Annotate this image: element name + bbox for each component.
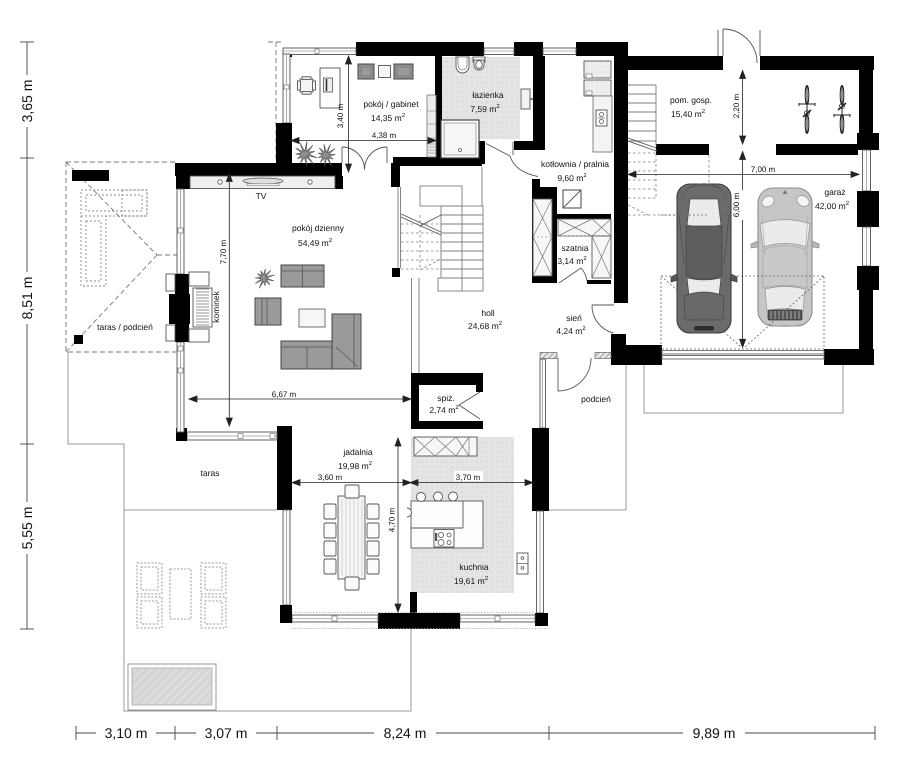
svg-text:garaż: garaż [824, 187, 845, 197]
svg-text:3,10 m: 3,10 m [105, 725, 148, 741]
svg-text:7,70 m: 7,70 m [219, 239, 228, 264]
svg-text:24,68 m2: 24,68 m2 [468, 320, 503, 331]
svg-text:kuchnia: kuchnia [459, 562, 489, 572]
svg-text:3,14 m2: 3,14 m2 [557, 255, 587, 266]
svg-text:19,61 m2: 19,61 m2 [454, 575, 489, 586]
svg-text:holl: holl [481, 308, 494, 318]
svg-text:8,51 m: 8,51 m [19, 277, 35, 320]
svg-text:2,74 m2: 2,74 m2 [429, 404, 459, 415]
svg-text:sień: sień [566, 313, 582, 323]
svg-text:3,07 m: 3,07 m [205, 725, 248, 741]
svg-text:3,40 m: 3,40 m [336, 103, 345, 128]
svg-text:5,55 m: 5,55 m [19, 507, 35, 550]
svg-text:6,00 m: 6,00 m [732, 192, 741, 217]
svg-text:6,67 m: 6,67 m [272, 390, 297, 399]
svg-text:7,59 m2: 7,59 m2 [470, 103, 500, 114]
svg-text:kominek: kominek [211, 290, 221, 322]
svg-text:jadalnia: jadalnia [342, 447, 373, 457]
svg-text:4,24 m2: 4,24 m2 [556, 325, 586, 336]
svg-text:szatnia: szatnia [562, 243, 589, 253]
svg-text:15,40 m2: 15,40 m2 [671, 108, 706, 119]
svg-text:2,20 m: 2,20 m [732, 93, 741, 118]
svg-text:3,65 m: 3,65 m [19, 80, 35, 123]
svg-text:7,00 m: 7,00 m [751, 165, 776, 174]
svg-text:pokój / gabinet: pokój / gabinet [363, 99, 419, 109]
svg-text:podcień: podcień [581, 394, 611, 404]
svg-text:9,60 m2: 9,60 m2 [557, 172, 587, 183]
svg-text:łazienka: łazienka [472, 90, 503, 100]
svg-text:3,70 m: 3,70 m [456, 473, 481, 482]
svg-text:19,98 m2: 19,98 m2 [338, 460, 373, 471]
svg-text:pom. gosp.: pom. gosp. [670, 95, 712, 105]
svg-text:kotłownia / pralnia: kotłownia / pralnia [541, 159, 609, 169]
svg-text:14,35 m2: 14,35 m2 [371, 112, 406, 123]
svg-text:42,00 m2: 42,00 m2 [815, 200, 850, 211]
svg-text:taras / podcień: taras / podcień [97, 322, 153, 332]
svg-text:3,60 m: 3,60 m [318, 473, 343, 482]
svg-text:4,70 m: 4,70 m [388, 507, 397, 532]
svg-text:54,49 m2: 54,49 m2 [298, 237, 333, 248]
svg-text:spiż.: spiż. [437, 393, 454, 403]
svg-text:9,89 m: 9,89 m [693, 725, 736, 741]
svg-text:8,24 m: 8,24 m [384, 725, 427, 741]
svg-text:4,38 m: 4,38 m [372, 131, 397, 140]
svg-text:pokój dzienny: pokój dzienny [292, 223, 345, 233]
svg-text:TV: TV [256, 191, 267, 201]
svg-text:taras: taras [201, 468, 220, 478]
